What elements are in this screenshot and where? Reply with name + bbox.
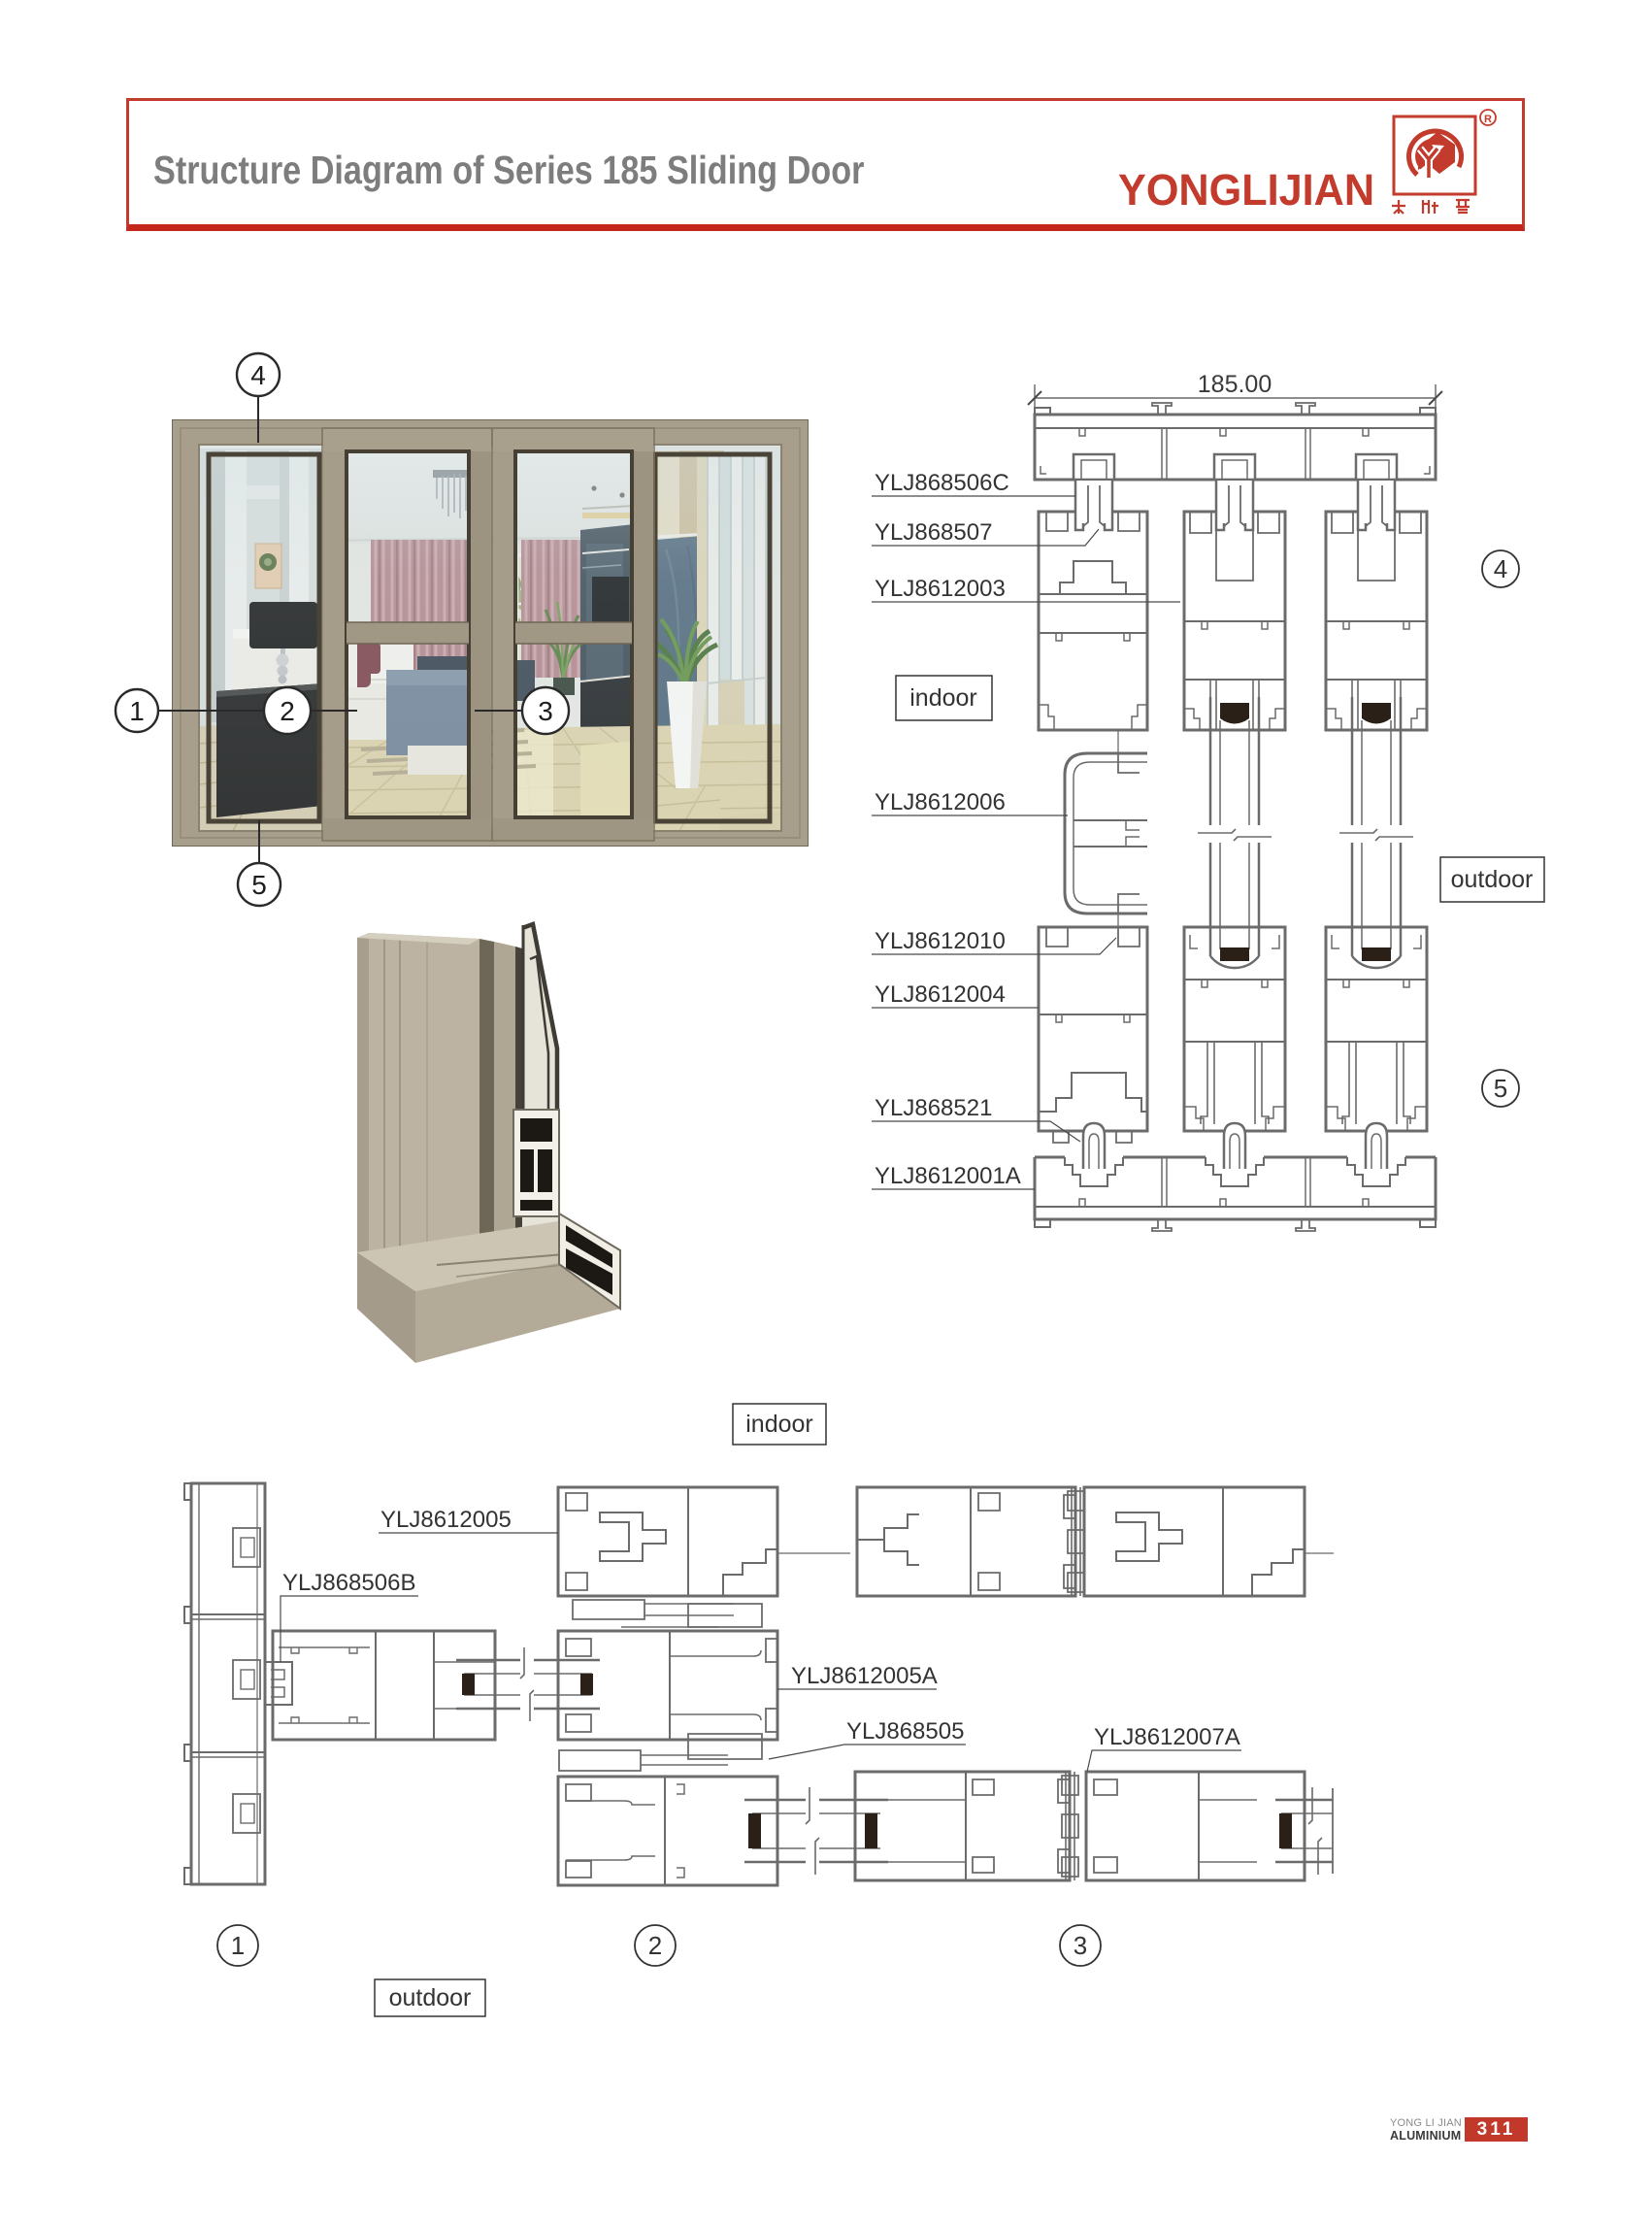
svg-text:YLJ8612005A: YLJ8612005A [791,1663,938,1689]
svg-text:3: 3 [1074,1931,1087,1960]
svg-text:1: 1 [129,696,145,726]
svg-text:YLJ868506B: YLJ868506B [282,1570,415,1596]
svg-text:2: 2 [648,1931,662,1960]
svg-text:indoor: indoor [909,684,977,712]
svg-text:YLJ8612005: YLJ8612005 [380,1507,512,1533]
svg-text:YLJ8612007A: YLJ8612007A [1094,1724,1240,1750]
svg-text:YLJ8612001A: YLJ8612001A [875,1163,1021,1189]
svg-text:YLJ868506C: YLJ868506C [875,470,1009,496]
svg-text:outdoor: outdoor [389,1984,472,2011]
svg-text:4: 4 [1494,554,1507,583]
svg-text:YLJ868505: YLJ868505 [846,1718,964,1745]
svg-text:R: R [1484,114,1492,125]
svg-text:3: 3 [538,696,553,726]
svg-text:YLJ8612010: YLJ8612010 [875,928,1006,954]
svg-text:YLJ8612004: YLJ8612004 [875,981,1006,1008]
svg-text:2: 2 [280,696,295,726]
svg-text:outdoor: outdoor [1451,866,1534,893]
svg-text:indoor: indoor [745,1411,813,1438]
svg-text:5: 5 [1494,1074,1507,1103]
svg-text:5: 5 [251,870,267,900]
svg-text:185.00: 185.00 [1198,371,1272,398]
svg-text:1: 1 [231,1931,245,1960]
svg-text:YLJ8612006: YLJ8612006 [875,789,1006,815]
svg-text:YLJ8612003: YLJ8612003 [875,576,1006,602]
svg-text:YLJ868507: YLJ868507 [875,519,992,546]
svg-text:4: 4 [250,360,266,390]
svg-text:YLJ868521: YLJ868521 [875,1095,992,1121]
